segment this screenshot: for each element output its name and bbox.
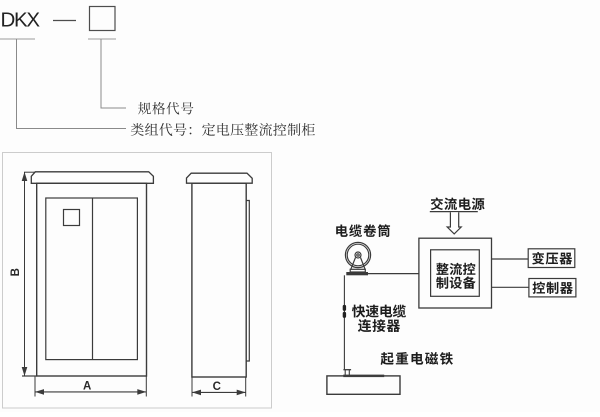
svg-text:DKX: DKX (1, 9, 41, 32)
svg-text:C: C (213, 381, 221, 393)
svg-text:A: A (83, 381, 91, 393)
svg-text:B: B (10, 268, 22, 276)
